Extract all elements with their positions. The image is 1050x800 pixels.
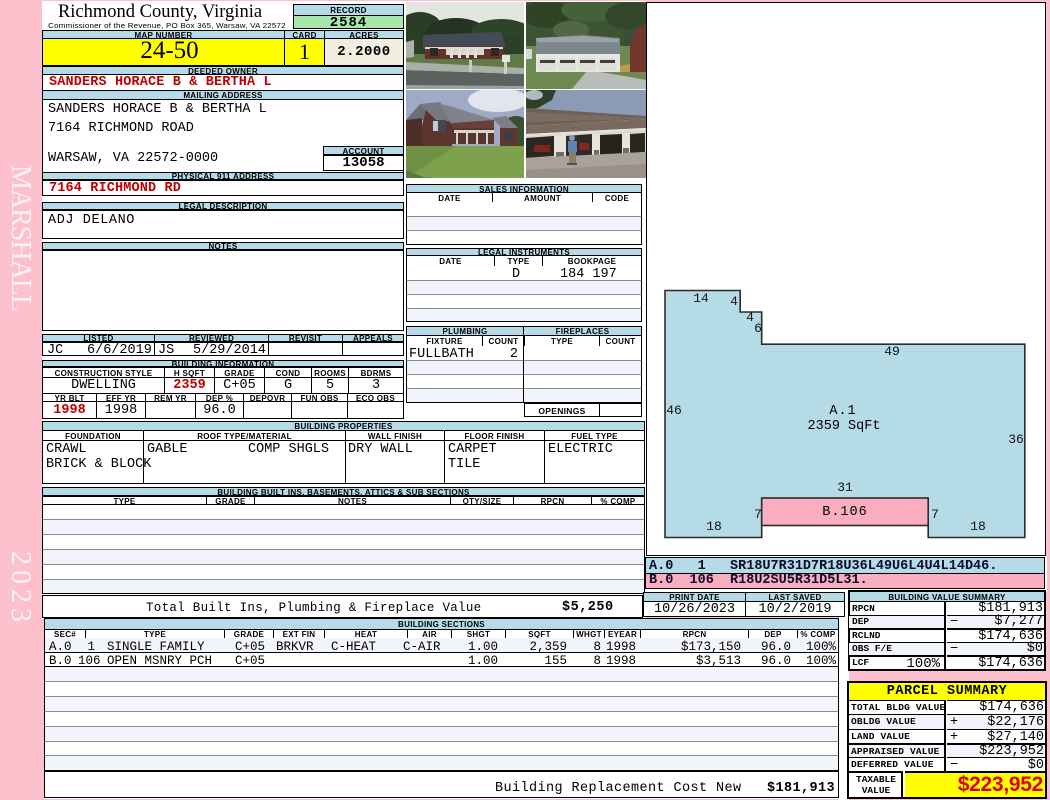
svg-text:14: 14 [693,291,709,306]
svg-text:18: 18 [970,519,986,534]
svg-text:18: 18 [706,519,722,534]
svg-text:2359 SqFt: 2359 SqFt [808,419,881,434]
svg-text:7: 7 [931,507,939,522]
svg-text:36: 36 [1008,432,1024,447]
svg-text:49: 49 [884,344,900,359]
svg-text:6: 6 [754,321,762,336]
svg-text:B.106: B.106 [822,505,868,520]
svg-text:4: 4 [730,294,738,309]
svg-text:A.1: A.1 [829,404,856,419]
svg-text:4: 4 [746,310,754,325]
svg-text:46: 46 [666,403,682,418]
svg-text:31: 31 [837,480,853,495]
svg-text:7: 7 [754,507,762,522]
